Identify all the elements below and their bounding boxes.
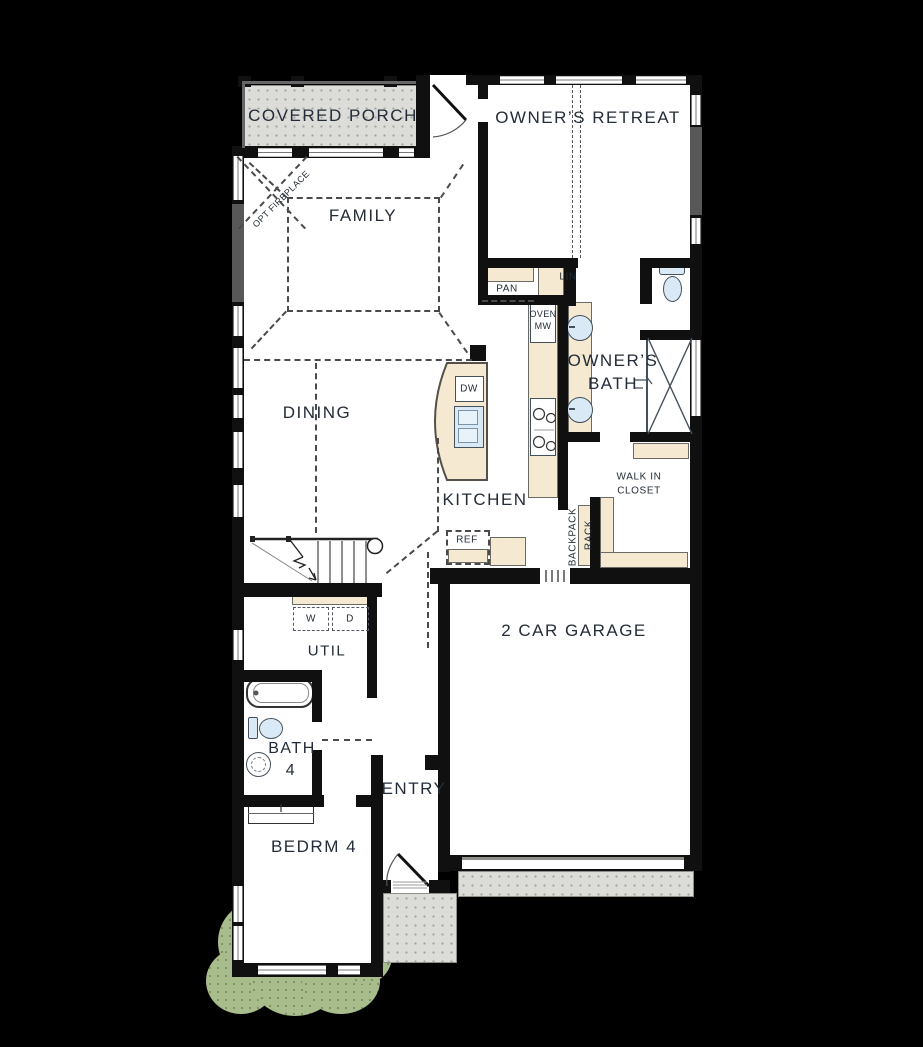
island-sink-basin (458, 428, 478, 443)
window (233, 432, 243, 468)
entry-boundary (322, 739, 372, 741)
entry-stoop (383, 893, 457, 963)
window (691, 218, 701, 244)
window (233, 348, 243, 388)
label-microwave: MW (535, 321, 552, 331)
dining-boundary (315, 363, 317, 533)
window (691, 340, 701, 416)
pantry-front (482, 300, 534, 302)
window (258, 148, 292, 157)
closet-shelf-top (633, 443, 689, 459)
kitchen-boundary (437, 438, 439, 532)
label-washer: W (306, 614, 316, 625)
wall-entry-jog (425, 755, 450, 770)
porch-edge-left (242, 81, 245, 148)
garage-door (462, 857, 684, 869)
label-dishwasher: DW (460, 384, 478, 395)
room-label-family: FAMILY (329, 206, 397, 226)
window (233, 926, 243, 960)
room-label-bath4-1: BATH (268, 740, 315, 758)
closet-rod (248, 813, 314, 814)
toilet-bowl (259, 718, 283, 739)
wall-accent (690, 127, 702, 215)
room-label-owners-bath-2: BATH (588, 374, 638, 394)
fireplace-wall-accent (232, 204, 244, 302)
label-pantry: PAN (496, 284, 518, 295)
wall-wc-left (640, 258, 652, 304)
label-rack: RACK (584, 520, 595, 550)
room-label-kitchen: KITCHEN (442, 490, 527, 510)
room-label-dining: DINING (283, 403, 352, 423)
bedroom-closet (248, 804, 314, 824)
wall-retreat-bottom (478, 258, 578, 268)
wall-bedroom-top-left (232, 795, 324, 807)
room-label-entry: ENTRY (382, 779, 447, 799)
wall-stairs-bottom (232, 583, 382, 597)
window (556, 76, 622, 84)
wall-garage-top-right (570, 568, 702, 584)
label-linen: LIN (559, 272, 576, 283)
wall-retreat-stub (478, 85, 488, 99)
window (233, 485, 243, 517)
room-label-garage: 2 CAR GARAGE (501, 621, 647, 641)
room-label-bedrm4: BEDRM 4 (271, 837, 357, 857)
vanity-sink (567, 397, 593, 423)
wall-retreat-left (478, 122, 488, 305)
wall-bath4-right (312, 670, 322, 722)
wall-garage-top-left (430, 568, 540, 584)
window (233, 630, 243, 660)
window (258, 965, 326, 975)
window (691, 95, 701, 125)
room-label-owners-bath-1: OWNER’S (568, 351, 659, 371)
toilet-tank (248, 717, 258, 739)
island-sink-basin (458, 410, 478, 425)
window (500, 76, 544, 84)
wall-bath4-top (232, 670, 322, 682)
wall-shower-bottom (630, 432, 702, 442)
room-label-bath4-2: 4 (286, 762, 296, 780)
ref-counter (448, 549, 488, 563)
entry-door-opening (391, 880, 429, 893)
wall-entry-bottom-left (371, 880, 393, 893)
bath4-sink-inner (251, 757, 266, 772)
room-label-covered-porch: COVERED PORCH (248, 106, 418, 126)
driveway-apron (458, 871, 694, 897)
wall-kitchen-post (470, 345, 486, 361)
porch-door-opening (430, 75, 466, 85)
hall-boundary (427, 552, 429, 648)
label-backpack: BACKPACK (568, 508, 579, 567)
kitchen-cabinet (490, 537, 526, 566)
window (233, 395, 243, 418)
wall-bedroom-top-right (356, 795, 383, 807)
retreat-door-opening (478, 99, 488, 122)
dining-boundary (244, 359, 472, 361)
floor-plan: COVERED PORCH OWNER’S RETREAT FAMILY OPT… (0, 0, 923, 1047)
wall-wc-bottom (640, 330, 702, 340)
toilet-bowl (663, 276, 682, 302)
closet-shelf-bottom (600, 552, 688, 568)
garage-service-door (540, 568, 570, 584)
porch-edge-top (242, 81, 416, 84)
wall-garage-left (438, 568, 450, 872)
wall-right-garage (690, 570, 702, 871)
label-oven: OVEN (529, 309, 556, 319)
wc-door-opening (640, 304, 652, 330)
wall-corridor-left (558, 432, 568, 510)
room-label-walk-in-closet-2: CLOSET (617, 486, 661, 497)
window (399, 148, 414, 157)
wall-entry-bottom-right (429, 880, 450, 893)
label-refrigerator: REF (456, 535, 478, 546)
vanity-sink (567, 315, 593, 341)
room-label-util: UTIL (308, 643, 347, 660)
window (636, 76, 686, 84)
window (233, 886, 243, 922)
cooktop (530, 398, 556, 456)
label-dryer: D (346, 614, 354, 625)
window (338, 965, 360, 975)
wall-kitchen-bath (558, 300, 568, 432)
window (233, 306, 243, 336)
room-label-walk-in-closet-1: WALK IN (617, 472, 662, 483)
window (309, 148, 383, 157)
room-label-owners-retreat: OWNER’S RETREAT (495, 108, 681, 128)
bathtub-inner (253, 683, 309, 703)
